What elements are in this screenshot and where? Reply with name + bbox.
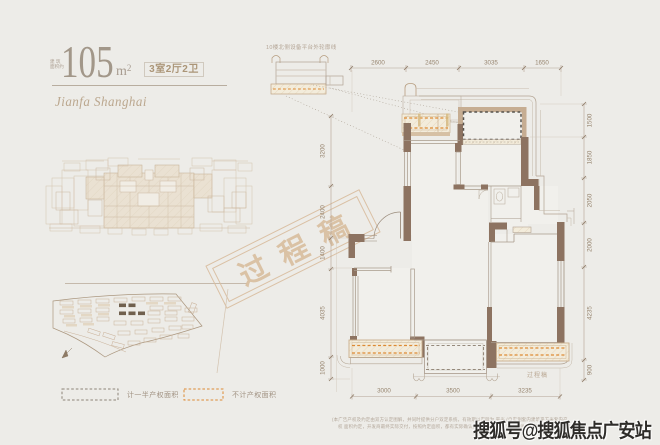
svg-text:900: 900 (587, 364, 594, 375)
svg-text:1650: 1650 (535, 60, 549, 67)
svg-text:3000: 3000 (377, 388, 391, 395)
svg-text:2450: 2450 (425, 60, 439, 67)
svg-text:3035: 3035 (484, 60, 498, 67)
svg-text:2600: 2600 (371, 60, 385, 67)
svg-text:3235: 3235 (518, 388, 532, 395)
svg-text:3200: 3200 (320, 144, 327, 158)
svg-text:4035: 4035 (320, 306, 327, 320)
svg-text:1000: 1000 (320, 361, 327, 375)
svg-text:1500: 1500 (587, 113, 594, 127)
svg-text:2050: 2050 (587, 193, 594, 207)
svg-text:2400: 2400 (320, 205, 327, 219)
svg-text:1400: 1400 (320, 246, 327, 260)
svg-text:2000: 2000 (587, 238, 594, 252)
svg-text:1850: 1850 (587, 150, 594, 164)
svg-text:4235: 4235 (587, 306, 594, 320)
svg-text:3500: 3500 (446, 388, 460, 395)
